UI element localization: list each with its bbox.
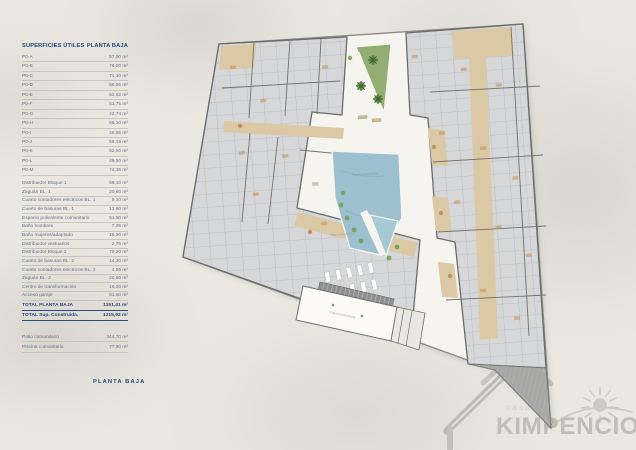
row-value: 49,50 m²: [105, 159, 128, 164]
row-value: 58,10 m²: [105, 181, 128, 186]
table-row: Piscina comunitaria 77,50 m²: [22, 342, 128, 352]
row-value: 16,30 m²: [105, 285, 128, 290]
table-row: P0-I 46,65 m²: [22, 129, 128, 138]
table-row: Cuarto de basuras BL. 2 14,30 m²: [22, 257, 128, 266]
row-label: Zaguán BL. 2: [22, 276, 51, 281]
row-value: 52,50 m²: [105, 149, 128, 154]
row-label: P0-F: [22, 102, 32, 107]
row-label: P0-H: [22, 121, 33, 126]
table-row: P0-J 59,15 m²: [22, 138, 128, 147]
row-label: Baño mujeres/adaptado: [22, 233, 73, 238]
row-label: Centro de transformación: [22, 285, 76, 290]
table-row: P0-A 57,00 m²: [22, 53, 128, 62]
table-row: Distribuidor Bloque 1 58,10 m²: [22, 180, 128, 189]
row-value: 76,00 m²: [105, 64, 128, 69]
table-row: P0-C 71,10 m²: [22, 72, 128, 81]
table-row: Patio comunitario 344,70 m²: [22, 332, 128, 342]
row-value: 70,20 m²: [105, 250, 128, 255]
row-label: Piscina comunitaria: [22, 345, 64, 350]
row-label: Zaguán BL. 1: [22, 190, 51, 195]
row-label: P0-L: [22, 159, 32, 164]
row-value: 81,50 m²: [105, 293, 128, 298]
table-header-right: PLANTA BAJA: [87, 43, 128, 49]
table-row: Cuarto contadores eléctricos BL. 1 5,10 …: [22, 197, 128, 206]
table-row: Zaguán BL. 1 20,60 m²: [22, 188, 128, 197]
row-value: 15,90 m²: [105, 233, 128, 238]
row-label: Cuarto contadores eléctricos BL. 2: [22, 268, 96, 273]
row-label: P0-G: [22, 112, 33, 117]
row-value: 71,10 m²: [105, 74, 128, 79]
row-label: Distribuidor Bloque 1: [22, 181, 67, 186]
row-value: 74,15 m²: [105, 168, 128, 173]
row-label: P0-A: [22, 55, 33, 60]
row-value: 53,52 m²: [105, 93, 128, 98]
table-row: P0-L 49,50 m²: [22, 157, 128, 166]
table-row: Espacio polivalente comunitario 51,50 m²: [22, 214, 128, 223]
table-row: P0-H 65,10 m²: [22, 119, 128, 128]
table-row: P0-K 52,50 m²: [22, 147, 128, 156]
table-row: Cuarto contadores eléctricos BL. 2 4,85 …: [22, 266, 128, 275]
row-value: 69,55 m²: [105, 83, 128, 88]
row-value: 42,74 m²: [105, 112, 128, 117]
row-value: 344,70 m²: [102, 335, 128, 340]
table-row: P0-B 76,00 m²: [22, 62, 128, 71]
table-row: Distribuidor vestuarios 2,75 m²: [22, 240, 128, 249]
table-row: Centro de transformación 16,30 m²: [22, 283, 128, 292]
sheet-title: PLANTA BAJA: [93, 379, 145, 385]
areas-table: SUPERFICIES ÚTILES PLANTA BAJA P0-A 57,0…: [22, 43, 128, 353]
row-label: Distribuidor vestuarios: [22, 242, 69, 247]
row-value: 2,75 m²: [108, 242, 128, 247]
row-label: Cuarto de basuras BL. 2: [22, 259, 74, 264]
table-header: SUPERFICIES ÚTILES PLANTA BAJA: [22, 43, 128, 49]
row-value: 1151,41 m²: [99, 303, 128, 308]
table-header-left: SUPERFICIES ÚTILES: [22, 43, 84, 49]
table-row: Zaguán BL. 2 20,80 m²: [22, 275, 128, 284]
row-value: 51,50 m²: [105, 216, 128, 221]
table-row: Acceso garaje 81,50 m²: [22, 292, 128, 301]
row-label: TOTAL PLANTA BAJA: [22, 303, 73, 308]
total-row: TOTAL PLANTA BAJA 1151,41 m²: [22, 301, 128, 311]
row-label: Espacio polivalente comunitario: [22, 216, 89, 221]
outdoor-list: Patio comunitario 344,70 m² Piscina comu…: [22, 332, 128, 353]
table-row: P0-G 42,74 m²: [22, 110, 128, 119]
row-label: P0-D: [22, 83, 33, 88]
row-value: 51,75 m²: [105, 102, 128, 107]
row-label: P0-K: [22, 149, 33, 154]
total-row: TOTAL Sup. Construida. 1215,92 m²: [22, 311, 128, 321]
table-row: P0-F 51,75 m²: [22, 100, 128, 109]
row-label: P0-J: [22, 140, 32, 145]
row-label: Cuarto contadores eléctricos BL. 1: [22, 198, 96, 203]
row-value: 46,65 m²: [105, 131, 128, 136]
table-row: P0-D 69,55 m²: [22, 81, 128, 90]
row-value: 59,15 m²: [105, 140, 128, 145]
row-label: P0-B: [22, 64, 33, 69]
row-value: 4,85 m²: [108, 268, 128, 273]
row-label: P0-C: [22, 74, 33, 79]
garage-access: [468, 364, 551, 428]
row-label: Acceso garaje: [22, 293, 52, 298]
row-label: Baño hombres: [22, 224, 53, 229]
row-value: 57,00 m²: [105, 55, 128, 60]
row-value: 13,60 m²: [105, 207, 128, 212]
row-label: P0-I: [22, 131, 31, 136]
row-value: 20,60 m²: [105, 190, 128, 195]
row-label: Distribuidor Bloque 2: [22, 250, 67, 255]
table-row: Baño hombres 7,05 m²: [22, 223, 128, 232]
table-row: Cuarto de basuras BL. 1 13,60 m²: [22, 206, 128, 215]
table-row: Distribuidor Bloque 2 70,20 m²: [22, 249, 128, 258]
row-value: 77,50 m²: [105, 345, 128, 350]
row-value: 20,80 m²: [105, 276, 128, 281]
row-value: 1215,92 m²: [99, 313, 128, 318]
row-value: 14,30 m²: [105, 259, 128, 264]
row-label: P0-M: [22, 168, 33, 173]
commons-list: Distribuidor Bloque 1 58,10 m² Zaguán BL…: [22, 180, 128, 301]
table-row: P0-M 74,15 m²: [22, 166, 128, 175]
row-value: 7,05 m²: [108, 224, 128, 229]
row-value: 5,10 m²: [108, 198, 128, 203]
row-label: P0-E: [22, 93, 33, 98]
totals-list: TOTAL PLANTA BAJA 1151,41 m² TOTAL Sup. …: [22, 301, 128, 321]
plan-sheet: casas KIMPENCIO: [0, 0, 636, 450]
table-row: Baño mujeres/adaptado 15,90 m²: [22, 232, 128, 241]
row-label: Cuarto de basuras BL. 1: [22, 207, 74, 212]
row-label: Patio comunitario: [22, 335, 59, 340]
table-row: P0-E 53,52 m²: [22, 91, 128, 100]
row-label: TOTAL Sup. Construida.: [22, 313, 78, 318]
row-value: 65,10 m²: [105, 121, 128, 126]
units-list: P0-A 57,00 m² P0-B 76,00 m² P0-C 71,10 m…: [22, 53, 128, 176]
